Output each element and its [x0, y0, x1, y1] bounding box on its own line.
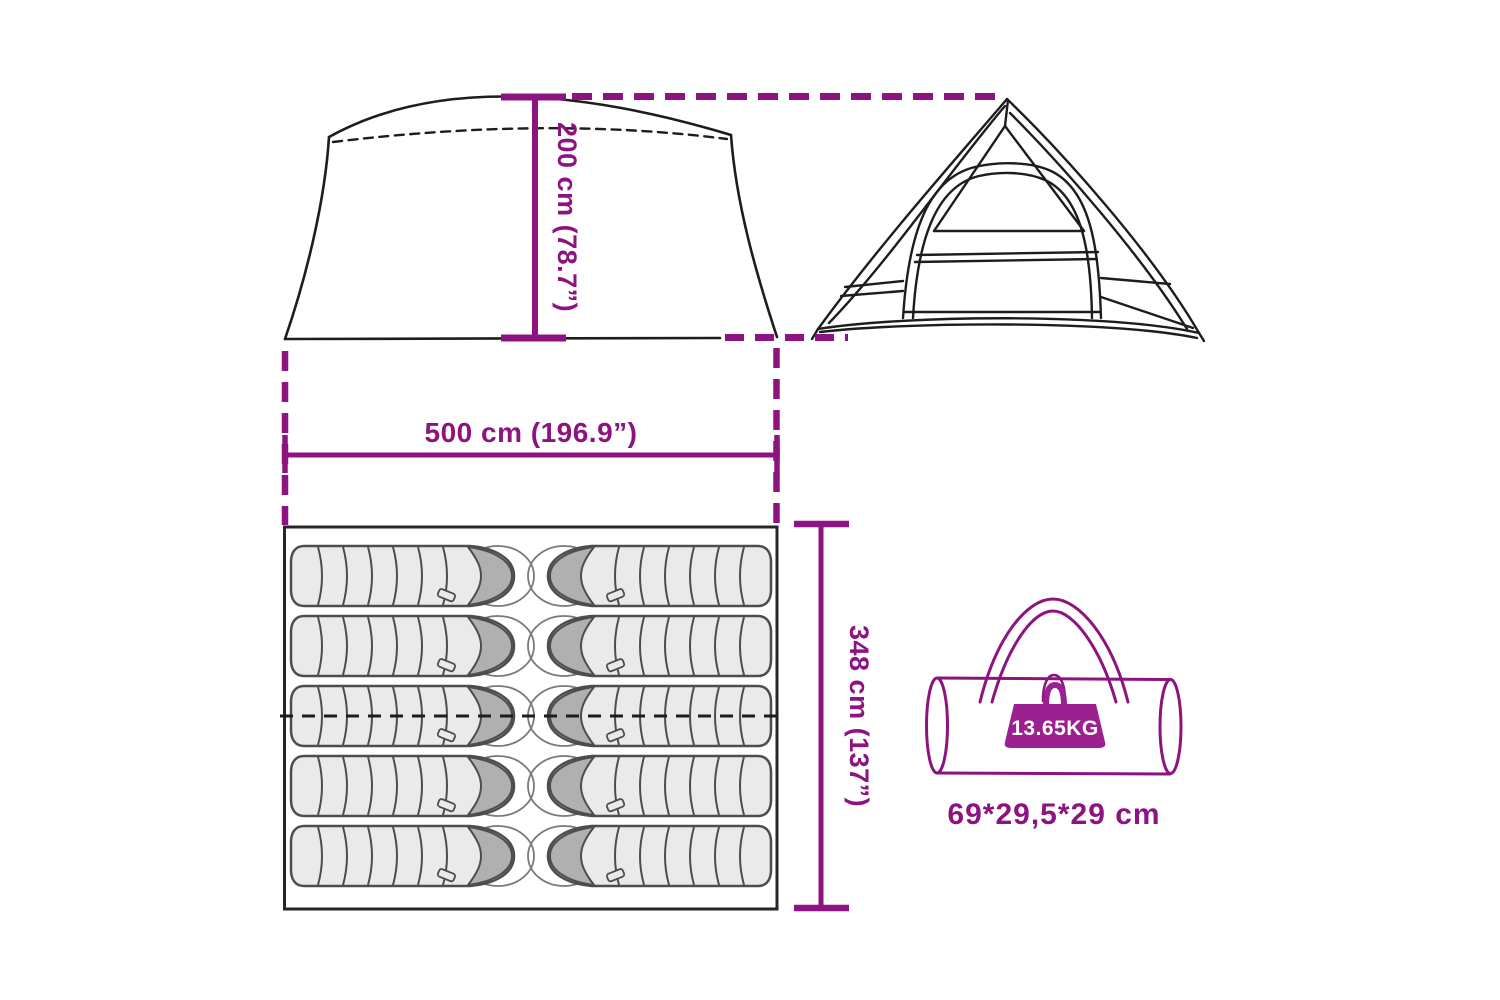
carry-bag-size-label: 69*29,5*29 cm [928, 798, 1180, 832]
sleeping-bag [528, 826, 771, 886]
sleeping-bag [528, 546, 771, 606]
sleeping-bag [291, 756, 534, 816]
inner-seam-dashed-line [333, 128, 727, 142]
tent-side-view [285, 96, 777, 339]
carry-bag [927, 599, 1182, 774]
sleeping-bag [528, 616, 771, 676]
sleeping-bag [528, 756, 771, 816]
sleeping-bag [291, 826, 534, 886]
weight-value-label: 13.65KG [1004, 717, 1106, 741]
width-dimension-label: 500 cm (196.9”) [285, 417, 777, 449]
tent-front-view [812, 99, 1204, 341]
sleeping-bag [291, 546, 534, 606]
diagram-artwork [0, 0, 1500, 1000]
tent-dimension-diagram: 200 cm (78.7”) 500 cm (196.9”) 348 cm (1… [0, 0, 1500, 1000]
projection-dashed-lines [285, 97, 1004, 526]
sleeping-bag [528, 686, 771, 746]
floor-plan [280, 527, 782, 909]
sleeping-bag [291, 616, 534, 676]
height-dimension-label: 200 cm (78.7”) [544, 97, 582, 338]
depth-dimension-label: 348 cm (137”) [836, 524, 874, 908]
